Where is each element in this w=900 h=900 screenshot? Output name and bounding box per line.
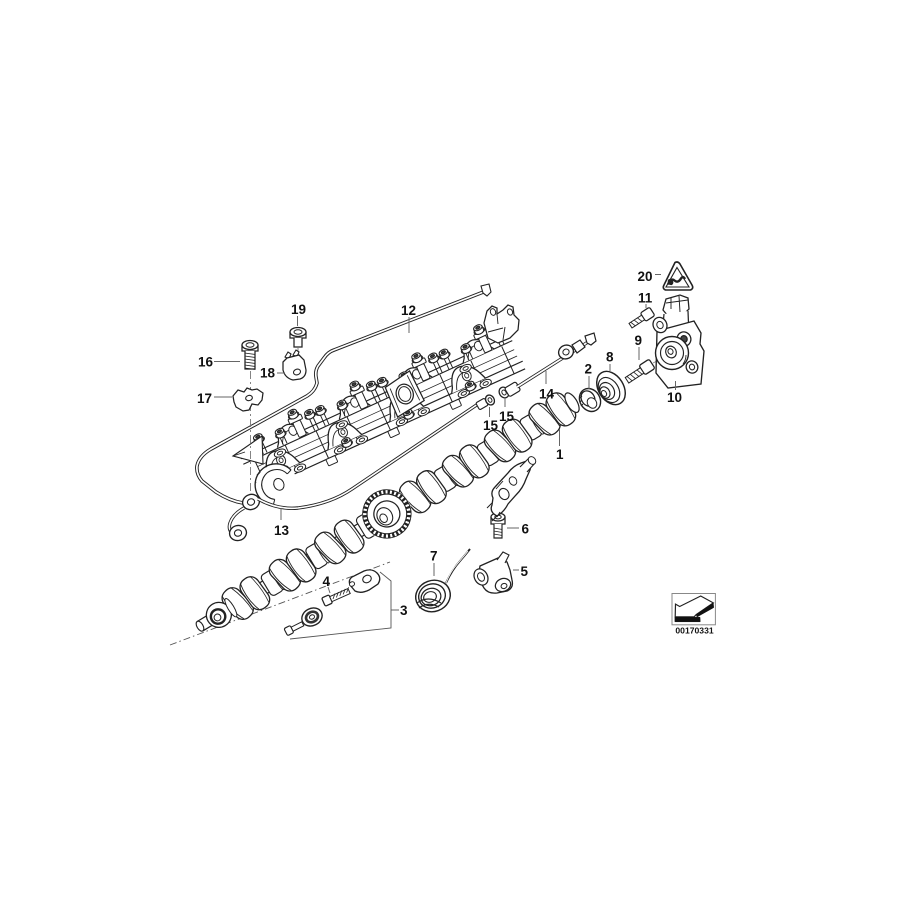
svg-text:9: 9 [635,333,643,348]
svg-text:6: 6 [522,522,530,537]
svg-text:19: 19 [291,302,306,317]
svg-text:7: 7 [430,549,438,564]
svg-text:10: 10 [667,390,682,405]
svg-text:18: 18 [260,366,276,381]
svg-text:8: 8 [606,350,614,365]
svg-text:15: 15 [483,418,499,433]
svg-text:20: 20 [638,269,653,284]
svg-text:3: 3 [400,603,408,618]
svg-text:13: 13 [274,523,290,538]
svg-text:12: 12 [401,303,416,318]
svg-text:16: 16 [198,355,214,370]
svg-text:15: 15 [499,409,515,424]
svg-text:00170331: 00170331 [675,626,713,636]
svg-text:1: 1 [556,447,564,462]
svg-text:14: 14 [539,387,555,402]
svg-text:5: 5 [521,564,529,579]
svg-text:11: 11 [638,291,653,306]
svg-text:4: 4 [323,574,331,589]
svg-text:2: 2 [585,362,593,377]
svg-text:17: 17 [197,391,212,406]
